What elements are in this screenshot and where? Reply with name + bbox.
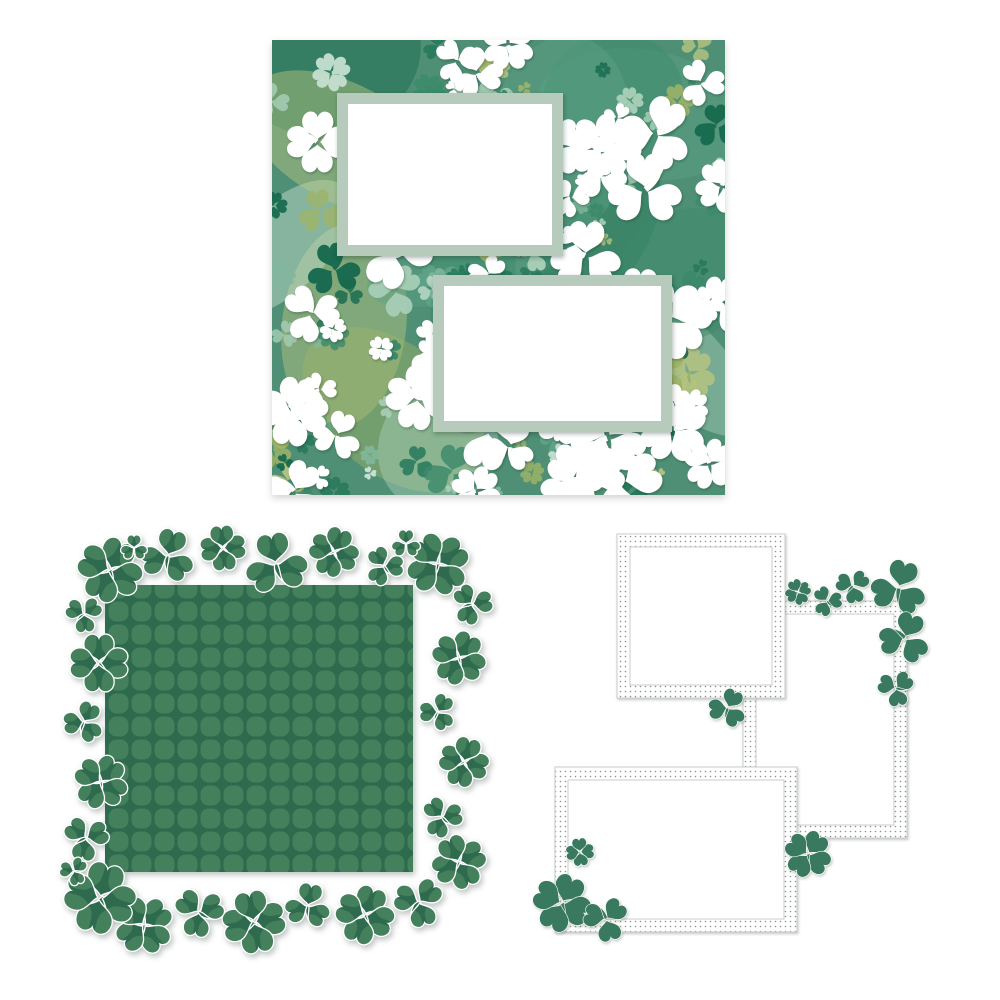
shamrock-icon: [56, 695, 113, 749]
product-image-canvas: [0, 0, 1000, 1000]
clover-pattern-page: [272, 40, 725, 495]
dotted-frame-cluster: [528, 524, 940, 954]
photo-mat: [337, 93, 563, 256]
photo-mat: [433, 275, 672, 432]
frame-opening: [630, 547, 772, 685]
shamrock-icon: [412, 687, 464, 737]
dotted-frame-cluster-art: [528, 524, 940, 954]
frame-opening: [568, 780, 784, 919]
photo-mat-opening: [444, 286, 661, 421]
dotted-photo-frame-square-frame: [617, 534, 785, 698]
photo-mat-opening: [348, 104, 552, 245]
shamrock-icon: [429, 727, 499, 797]
shamrock-icon: [300, 518, 368, 586]
diecut-page-square: [105, 585, 413, 872]
shamrock-icon: [163, 876, 234, 947]
shamrock-icon: [325, 875, 405, 955]
diecut-clover-border-page: [38, 508, 488, 958]
shamrock-icon: [209, 877, 299, 967]
diecut-clover-border-art: [38, 508, 488, 958]
shamrock-icon: [425, 624, 494, 693]
clover-pattern-page-art: [272, 40, 725, 495]
shamrock-icon: [280, 880, 336, 931]
